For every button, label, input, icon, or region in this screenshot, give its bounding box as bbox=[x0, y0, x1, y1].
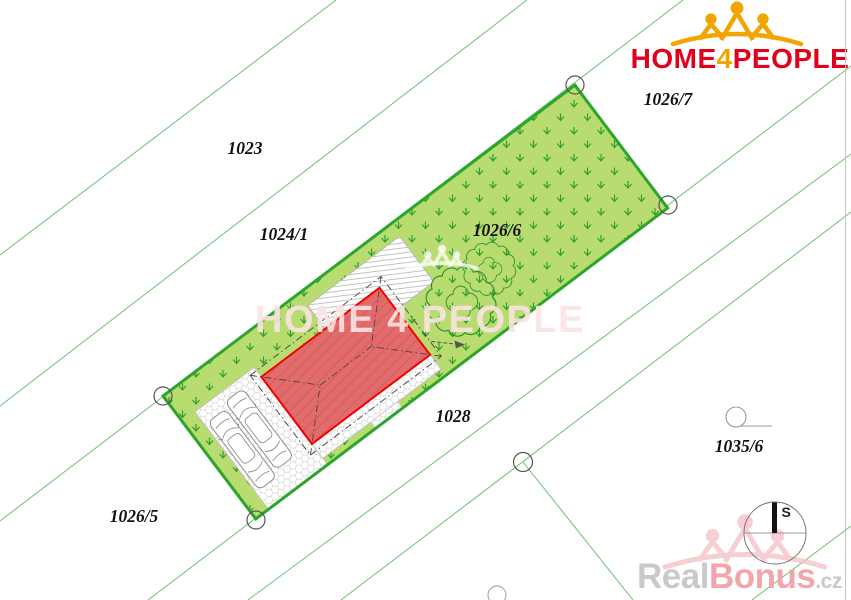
logo-word-4: 4 bbox=[717, 43, 733, 74]
north-needle bbox=[772, 503, 777, 534]
north-label: S bbox=[782, 504, 791, 520]
parcel-label-1026-6: 1026/6 bbox=[473, 220, 522, 240]
realbonus-part2: Bonus bbox=[709, 557, 815, 596]
site-plan-canvas: 1023 1024/1 1026/6 1026/7 1028 1026/5 10… bbox=[0, 0, 851, 600]
parcel-label-1023: 1023 bbox=[228, 138, 263, 158]
parcel-label-1028: 1028 bbox=[436, 406, 471, 426]
watermark-text: HOME 4 PEOPLE bbox=[255, 299, 585, 341]
realbonus-part1: Real bbox=[637, 557, 709, 596]
parcel-label-1035-6: 1035/6 bbox=[715, 436, 764, 456]
parcel-label-1026-7: 1026/7 bbox=[644, 89, 694, 109]
site-plan-page: 1023 1024/1 1026/6 1026/7 1028 1026/5 10… bbox=[0, 0, 851, 600]
realbonus-part3: .cz bbox=[815, 570, 842, 593]
logo-text: HOME4PEOPLE bbox=[631, 43, 850, 74]
logo-word-home: HOME bbox=[631, 43, 717, 74]
parcel-label-1024-1: 1024/1 bbox=[260, 224, 309, 244]
parcel-label-1026-5: 1026/5 bbox=[110, 506, 159, 526]
logo-word-people: PEOPLE bbox=[733, 43, 850, 74]
realbonus-watermark: RealBonus.cz bbox=[637, 557, 842, 596]
